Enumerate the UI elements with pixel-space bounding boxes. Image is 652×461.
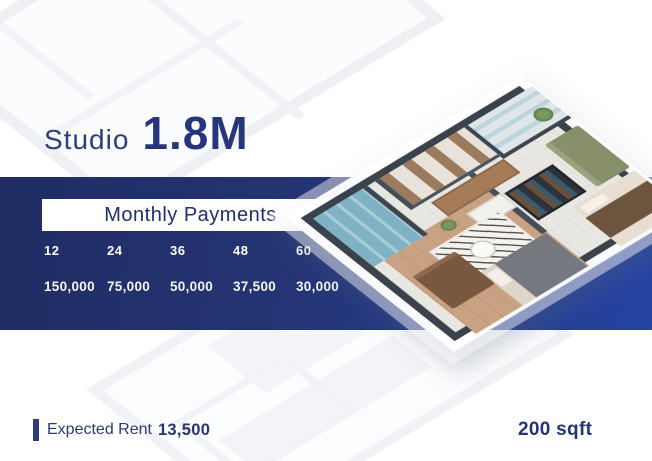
plan-amount: 150,000 (44, 279, 107, 294)
unit-type-label: Studio (44, 124, 129, 156)
expected-rent: Expected Rent 13,500 (33, 419, 210, 441)
rent-value: 13,500 (158, 421, 210, 440)
plan-column-36: 36 50,000 (170, 243, 233, 294)
rent-label: Expected Rent (47, 421, 152, 439)
monthly-payments-title: Monthly Payments (96, 204, 277, 227)
listing-title: Studio 1.8M (44, 106, 249, 160)
plan-months: 48 (233, 243, 296, 258)
ghost-wall (0, 22, 95, 100)
plan-amount: 50,000 (170, 279, 233, 294)
accent-bar (33, 419, 39, 441)
plan-amount: 30,000 (296, 279, 359, 294)
plan-column-12: 12 150,000 (44, 243, 107, 294)
bathroom (464, 86, 571, 158)
price-label: 1.8M (142, 106, 248, 160)
plan-column-60: 60 30,000 (296, 243, 359, 294)
plan-amount: 37,500 (233, 279, 296, 294)
payment-plans-table: 12 150,000 24 75,000 36 50,000 48 37,500… (44, 243, 359, 294)
monthly-payments-header: Monthly Payments (42, 199, 331, 231)
plan-column-24: 24 75,000 (107, 243, 170, 294)
plant (529, 105, 557, 125)
plan-months: 60 (296, 243, 359, 258)
plan-months: 36 (170, 243, 233, 258)
plan-months: 12 (44, 243, 107, 258)
unit-area: 200 sqft (518, 419, 592, 441)
plan-months: 24 (107, 243, 170, 258)
plan-column-48: 48 37,500 (233, 243, 296, 294)
studio-listing-flyer: Studio 1.8M Monthly Payments 12 150,000 … (0, 0, 652, 461)
plan-amount: 75,000 (107, 279, 170, 294)
ghost-wall (101, 0, 305, 120)
